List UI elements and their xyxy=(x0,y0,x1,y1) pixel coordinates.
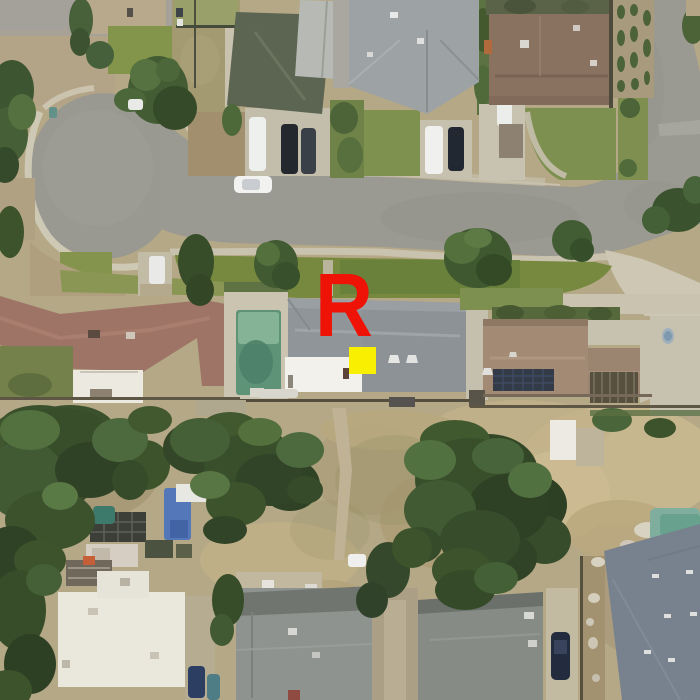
svg-text:R: R xyxy=(315,256,373,356)
